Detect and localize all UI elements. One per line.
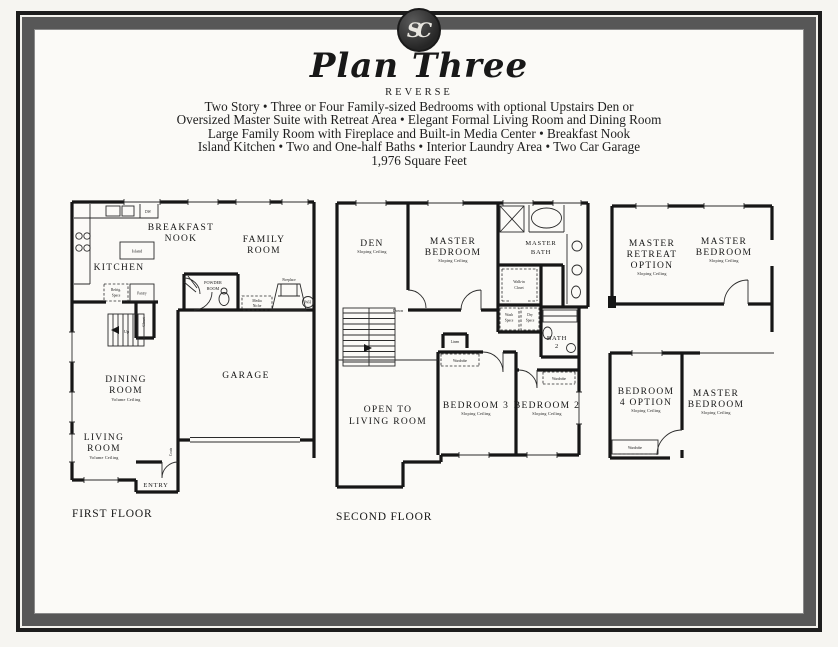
bedroom4-master-note: Sloping Ceiling <box>701 410 731 415</box>
powder-label-2: ROOM <box>207 286 220 291</box>
bedroom4-label-2: 4 OPTION <box>620 398 672 408</box>
bedroom4-door-arc <box>657 430 682 455</box>
wall-post <box>608 296 616 308</box>
bath2-label-2: 2 <box>555 343 559 350</box>
dry-label-2: Space <box>526 319 535 323</box>
retreat-bedroom-label-1: MASTER <box>701 237 747 247</box>
stairs-down <box>343 308 395 366</box>
media-label-2: Niche <box>253 304 262 308</box>
plan-subtitle: REVERSE <box>0 87 838 98</box>
toilet <box>572 286 581 298</box>
refrig-label-2: Space <box>112 294 121 298</box>
master-bedroom-note: Sloping Ceiling <box>438 258 468 263</box>
refrig-space <box>104 284 128 301</box>
description-line-4: Island Kitchen • Two and One-half Baths … <box>0 140 838 153</box>
wardrobe2-label: Wardrobe <box>552 377 566 381</box>
up-label: Up <box>124 329 129 334</box>
retreat-label-3: OPTION <box>631 261 674 271</box>
down-label: Down <box>393 308 404 313</box>
description-line-3: Large Family Room with Fireplace and Bui… <box>0 127 838 140</box>
dining-room-note: Volume Ceiling <box>111 397 141 402</box>
retreat-door-arc <box>724 280 748 304</box>
master-bedroom-label-1: MASTER <box>430 237 476 247</box>
family-room-label-2: ROOM <box>247 246 281 256</box>
first-floor-caption: FIRST FLOOR <box>72 508 152 520</box>
dining-room-label-2: ROOM <box>109 386 143 396</box>
bedroom2-note: Sloping Ceiling <box>532 411 562 416</box>
bedroom4-master-label-2: BEDROOM <box>688 400 745 410</box>
bedroom3-label: BEDROOM 3 <box>443 401 509 411</box>
bedroom4-master-label-1: MASTER <box>693 389 739 399</box>
fireplace-label: Fireplace <box>282 278 296 282</box>
retreat-bedroom-note: Sloping Ceiling <box>709 258 739 263</box>
breakfast-nook-label-2: NOOK <box>165 234 198 244</box>
garage-label: GARAGE <box>222 371 269 381</box>
powder-label-1: POWDER <box>204 280 222 285</box>
stairs-up: Up <box>108 314 144 346</box>
down-arrow-icon <box>364 344 372 352</box>
open-to-label-2: LIVING ROOM <box>349 417 427 427</box>
tub <box>532 208 562 228</box>
description-line-5: 1,976 Square Feet <box>0 154 838 167</box>
retreat-label-1: MASTER <box>629 239 675 249</box>
living-room-label-1: LIVING <box>84 433 125 443</box>
first-floor-plan: DW Island Refrig. Space Pantry Closet Up… <box>66 186 320 508</box>
sink <box>567 344 576 353</box>
wh-label: WH <box>305 301 311 305</box>
garage-door <box>190 438 300 443</box>
bath2-label-1: BATH <box>547 335 567 342</box>
master-bedroom-label-2: BEDROOM <box>425 248 482 258</box>
up-arrow-icon <box>111 326 119 334</box>
bedroom4-wardrobe: Wardrobe <box>612 440 658 454</box>
open-to-label-1: OPEN TO <box>364 405 413 415</box>
wardrobe4-label: Wardrobe <box>628 446 642 450</box>
wardrobe3-label: Wardrobe <box>453 359 467 363</box>
fireplace: Fireplace <box>272 278 306 310</box>
retreat-note: Sloping Ceiling <box>637 271 667 276</box>
dining-room-label-1: DINING <box>105 375 147 385</box>
living-room-label-2: ROOM <box>87 444 121 454</box>
bath2-fixtures <box>543 310 577 353</box>
second-floor-caption: SECOND FLOOR <box>336 511 432 523</box>
walkin-closet-rods <box>502 269 537 301</box>
sink <box>572 265 582 275</box>
description-line-2: Oversized Master Suite with Retreat Area… <box>0 113 838 126</box>
master-bath-label-2: BATH <box>531 249 551 256</box>
brochure-page: SC Plan Three REVERSE Two Story • Three … <box>0 0 838 647</box>
family-room-label-1: FAMILY <box>243 235 286 245</box>
wash-label-2: Space <box>505 319 514 323</box>
refrig-label-1: Refrig. <box>111 288 121 292</box>
bedroom4-label-1: BEDROOM <box>618 387 675 397</box>
den-label: DEN <box>360 239 383 249</box>
kitchen-label: KITCHEN <box>94 263 145 273</box>
range-burner-icon <box>84 233 90 239</box>
linen-label: Linen <box>451 340 460 344</box>
retreat-bedroom-label-2: BEDROOM <box>696 248 753 258</box>
coats-label: Coats <box>169 447 173 456</box>
bedroom4-option-plan: Wardrobe BEDROOM 4 OPTION Sloping Ceilin… <box>606 342 778 472</box>
sink <box>572 241 582 251</box>
pantry-label: Pantry <box>137 292 147 296</box>
walkin-label-2: Closet <box>514 286 523 290</box>
master-retreat-option-plan: MASTER RETREAT OPTION Sloping Ceiling MA… <box>606 194 792 338</box>
walkin-label-1: Walk-in <box>513 280 525 284</box>
living-room-note: Volume Ceiling <box>89 455 119 460</box>
second-floor-plan: Down Walk-in Closet Wash Space Dry Space <box>331 192 595 512</box>
dishwasher-label: DW <box>145 210 152 214</box>
dry-label-1: Dry <box>527 313 533 317</box>
master-bath-label-1: MASTER <box>525 240 556 247</box>
den-note: Sloping Ceiling <box>357 249 387 254</box>
description-line-1: Two Story • Three or Four Family-sized B… <box>0 100 838 113</box>
retreat-label-2: RETREAT <box>627 250 678 260</box>
range-burner-icon <box>76 233 82 239</box>
plan-description: Two Story • Three or Four Family-sized B… <box>0 100 838 167</box>
bedroom2-label: BEDROOM 2 <box>514 401 580 411</box>
entry-label: ENTRY <box>143 482 168 489</box>
island-label: Island <box>132 249 143 254</box>
bedroom4-windows <box>632 350 662 356</box>
logo-monogram: SC <box>407 18 431 42</box>
wash-label-1: Wash <box>505 313 513 317</box>
bedroom4-note: Sloping Ceiling <box>631 408 661 413</box>
range-burner-icon <box>76 245 82 251</box>
entry-door-arc <box>162 462 178 478</box>
range-burner-icon <box>84 245 90 251</box>
breakfast-nook-label-1: BREAKFAST <box>148 223 214 233</box>
media-label-1: Media <box>252 299 262 303</box>
bedroom3-note: Sloping Ceiling <box>461 411 491 416</box>
plan-title: Plan Three <box>0 46 838 86</box>
